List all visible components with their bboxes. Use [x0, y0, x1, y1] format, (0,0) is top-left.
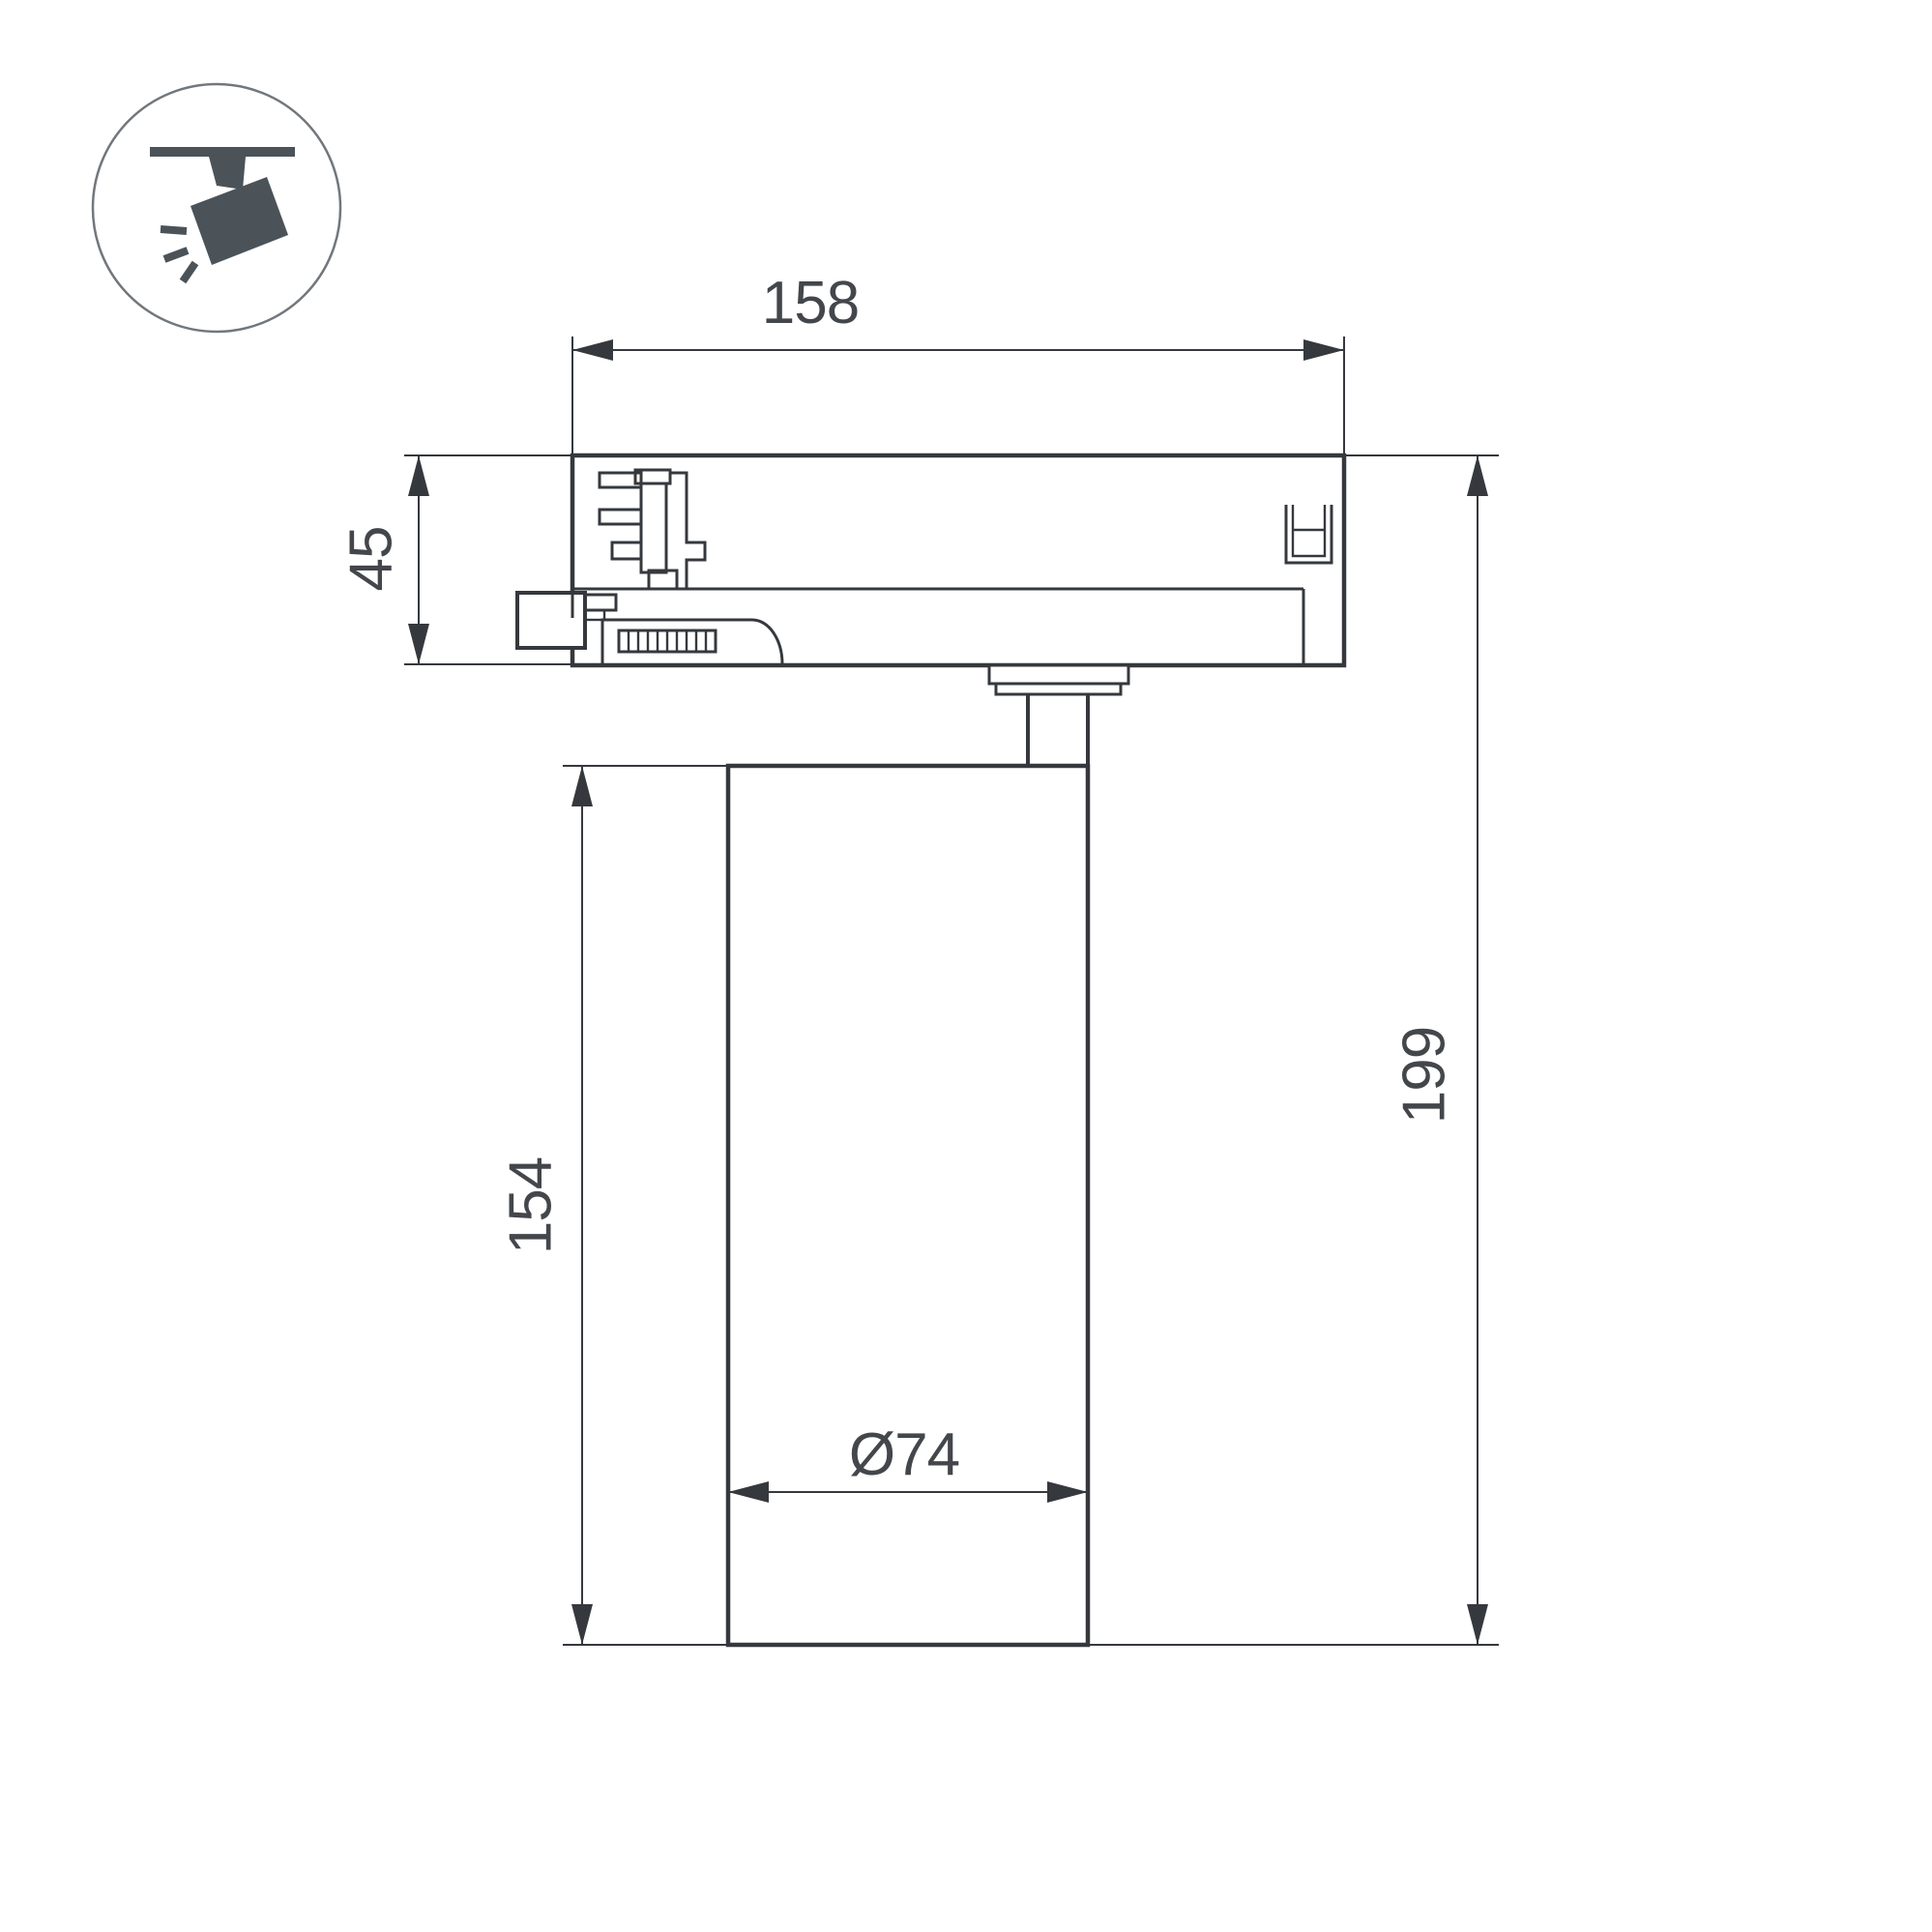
- icon-light-ray: [164, 250, 188, 259]
- arrowhead: [408, 455, 429, 496]
- stem-flange-upper: [989, 665, 1128, 684]
- icon-stem: [209, 157, 246, 190]
- stem-flange-lower: [996, 684, 1121, 694]
- dimension-body-height: 154: [498, 766, 729, 1645]
- dimension-adapter-width: 158: [572, 270, 1344, 455]
- arrowhead: [1467, 1604, 1488, 1645]
- dimension-value: 45: [338, 527, 405, 592]
- arrowhead: [1303, 339, 1344, 361]
- dimension-drawing: 158 45 154 199 Ø74: [0, 0, 1932, 1932]
- dimension-value: 154: [498, 1157, 565, 1254]
- lamp-body: [728, 766, 1088, 1645]
- track-adapter: [517, 455, 1344, 665]
- icon-track-bar: [150, 147, 295, 157]
- icon-light-ray: [183, 263, 195, 281]
- arrowhead: [408, 624, 429, 664]
- icon-light-ray: [161, 229, 187, 231]
- dimension-value: 158: [762, 270, 859, 337]
- arrowhead: [572, 339, 613, 361]
- dimension-value: 199: [1391, 1027, 1458, 1124]
- drawing-page: 158 45 154 199 Ø74: [0, 0, 1932, 1932]
- track-spotlight-icon: [93, 84, 340, 332]
- mounting-stem: [989, 665, 1128, 766]
- arrowhead: [571, 766, 593, 806]
- arrowhead: [571, 1604, 593, 1645]
- icon-lamp-head: [190, 177, 288, 265]
- side-latch: [517, 593, 585, 648]
- arrowhead: [1467, 455, 1488, 496]
- dimension-value: Ø74: [849, 1421, 959, 1488]
